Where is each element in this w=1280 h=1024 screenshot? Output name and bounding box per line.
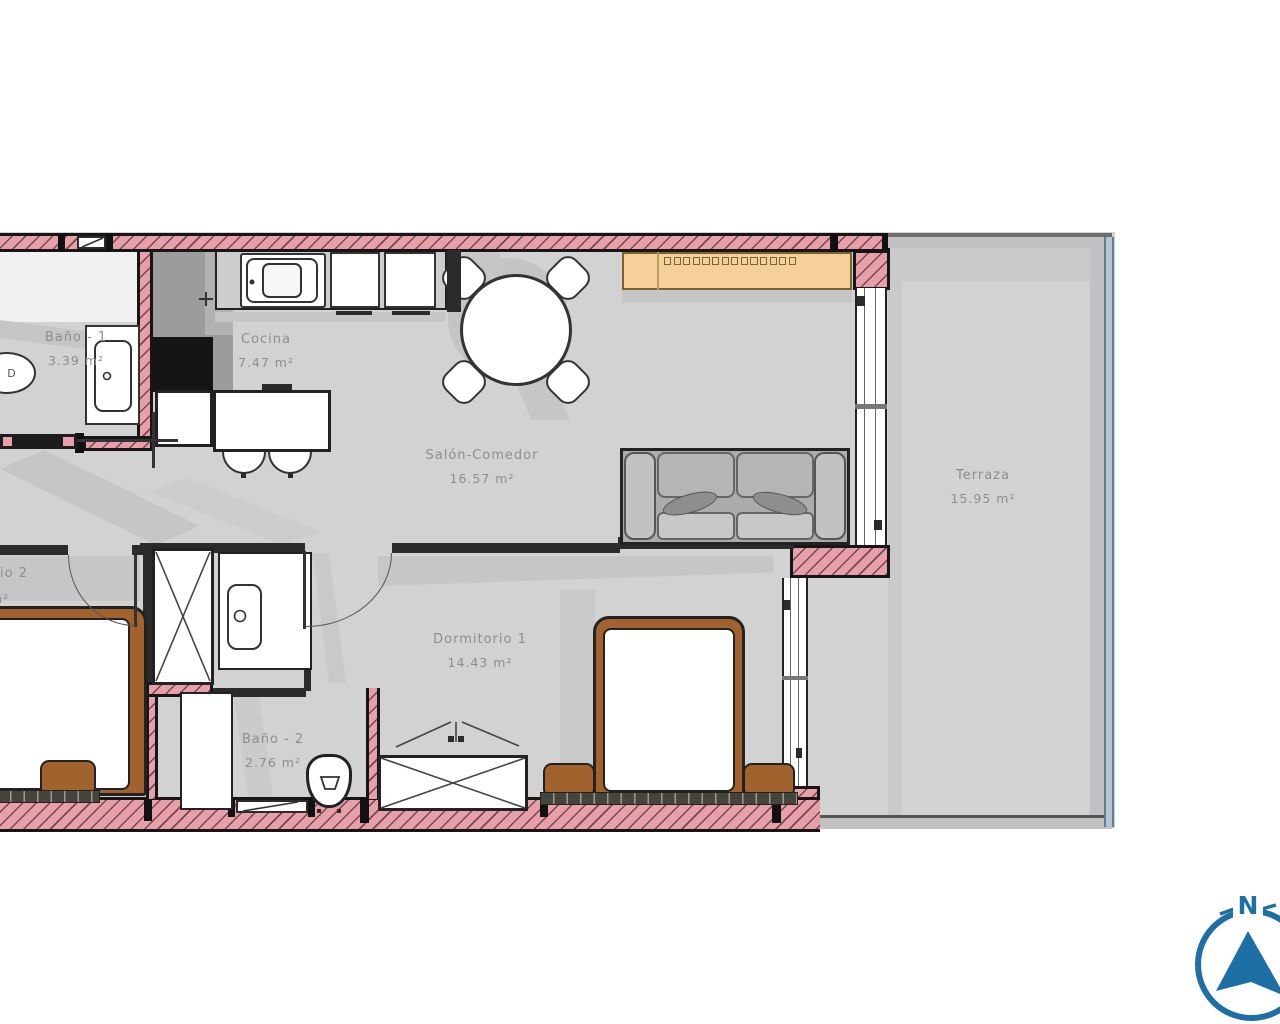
room-name: Salón-Comedor: [412, 446, 552, 466]
glazing-mullion: [782, 676, 808, 680]
wall-cap: [58, 233, 65, 252]
stool-foot: [241, 473, 246, 478]
sofa-back-cushion: [657, 452, 735, 498]
cabinet-handle: [336, 311, 372, 315]
room-label-salon: Salón-Comedor 16.57 m²: [412, 446, 552, 489]
terrace-top-shadow: [888, 248, 1112, 282]
wall-pink-step: [790, 545, 890, 578]
compass-tick: [1262, 905, 1276, 909]
glazed-door-terrace: [855, 288, 887, 545]
sideboard-knobs: [664, 257, 796, 265]
kitchen-sink-basin: [262, 263, 302, 298]
sliding-door-leaf: [77, 439, 178, 442]
glazing-mullion: [855, 404, 887, 409]
wall-cap: [830, 233, 838, 252]
stool-foot: [288, 473, 293, 478]
terrace-top-band: [888, 237, 1112, 248]
toilet-foot: [337, 809, 341, 813]
terrace-left-shadow: [888, 282, 902, 822]
closet: [152, 548, 214, 685]
room-label-cocina: Cocina 7.47 m²: [196, 330, 336, 373]
window-bathroom1: [77, 236, 106, 249]
room-name: Baño - 1: [6, 328, 146, 348]
window-bottom: [236, 800, 308, 813]
peninsula-handle: [262, 384, 292, 390]
room-name-fragment: io 2: [0, 564, 50, 584]
kitchen-divider-wall: [447, 250, 461, 312]
wall-pink: [853, 250, 890, 290]
wall-cap: [360, 797, 369, 823]
glazing-block: [784, 600, 790, 610]
terrace-drain-strip: [1090, 237, 1104, 827]
glazing-line: [875, 288, 876, 545]
glazing-block: [874, 520, 882, 530]
room-name: Cocina: [196, 330, 336, 350]
kitchen-appliance: [330, 252, 380, 308]
glazing-line: [790, 578, 791, 788]
room-area: 14.43 m²: [410, 653, 550, 673]
glazing-line: [864, 288, 865, 545]
bed1-mattress: [603, 628, 735, 792]
room-area: 2.76 m²: [203, 753, 343, 773]
sliding-door-frame-inset: [63, 437, 74, 446]
dining-table: [460, 274, 572, 386]
sideboard-divider: [657, 252, 659, 290]
glazing-block: [857, 296, 865, 306]
sliding-door-grip: [152, 412, 155, 468]
room-area: 3.39 m²: [6, 351, 146, 371]
room-area: 16.57 m²: [412, 469, 552, 489]
room-label-dormitorio2-fragment: io 2: [0, 564, 50, 584]
room-name: Baño - 2: [203, 730, 343, 750]
sofa-seat-cushion: [657, 512, 735, 540]
sofa-back-cushion: [736, 452, 814, 498]
sofa-seat-cushion: [736, 512, 814, 540]
toilet-foot: [317, 809, 321, 813]
room-name: Terraza: [913, 466, 1053, 486]
floor-plan: D: [0, 0, 1280, 1024]
north-letter: N: [1238, 891, 1259, 920]
room-area: 15.95 m²: [913, 489, 1053, 509]
bed1-headboard: [540, 792, 798, 805]
interior-wall: [0, 545, 68, 555]
compass-circle: [1195, 908, 1280, 1021]
bed2-headboard: [0, 790, 100, 803]
cabinet-handle: [392, 311, 430, 315]
terrace-bottom-band: [820, 818, 1112, 829]
compass-north-label: N: [1233, 892, 1263, 919]
kitchen-appliance: [384, 252, 436, 308]
wall-cap: [144, 797, 152, 821]
sideboard-shadow: [622, 289, 852, 303]
bidet-label: D: [2, 364, 22, 384]
room-name: Dormitorio 1: [410, 630, 550, 650]
sofa-armrest: [624, 452, 656, 540]
wall-pink: [146, 697, 158, 799]
room-label-terraza: Terraza 15.95 m²: [913, 466, 1053, 509]
kitchen-peninsula: [213, 390, 331, 452]
room-area: 7.47 m²: [196, 353, 336, 373]
bathtub-basin: [227, 584, 262, 650]
sofa-armrest: [814, 452, 846, 540]
wardrobe: [378, 755, 528, 811]
terrace-railing: [1104, 237, 1114, 827]
room-label-bano2: Baño - 2 2.76 m²: [203, 730, 343, 773]
glazing-block: [796, 748, 802, 758]
room-area-dormitorio2-fragment: m²: [0, 586, 20, 609]
room-area-fragment: m²: [0, 589, 20, 609]
bidet-letter: D: [7, 367, 16, 380]
interior-wall: [132, 545, 143, 555]
room-label-bano1: Baño - 1 3.39 m²: [6, 328, 146, 371]
sliding-door-frame-inset: [3, 437, 12, 446]
exterior-wall-top: [0, 233, 890, 252]
bathroom1-floor: [0, 252, 137, 322]
bedroom1-shadow: [560, 590, 595, 790]
room-label-dormitorio1: Dormitorio 1 14.43 m²: [410, 630, 550, 673]
interior-wall: [392, 543, 620, 553]
wall-cap: [106, 233, 113, 252]
